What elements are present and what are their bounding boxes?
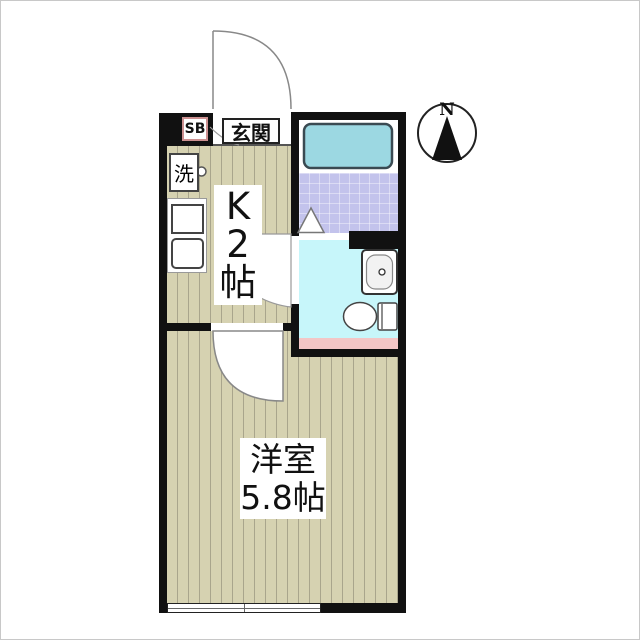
stove-box xyxy=(171,204,204,234)
room-door-swing xyxy=(213,331,283,401)
compass-north-label: N xyxy=(437,100,457,120)
western-room-label: 洋室 5.8帖 xyxy=(240,438,326,519)
toilet-icon xyxy=(344,303,398,331)
kitchen-label-line1: K xyxy=(226,188,250,226)
compass-north-text: N xyxy=(439,100,455,120)
floor-plan: 洗 SB 玄関 K 2 帖 洋室 5.8帖 N xyxy=(0,0,640,640)
shower-door-triangle-icon xyxy=(298,208,324,233)
room-name-text: 洋室 xyxy=(250,441,316,479)
washer-label: 洗 xyxy=(174,158,194,187)
washing-machine-space: 洗 xyxy=(169,153,199,192)
shoe-box-text: SB xyxy=(185,121,206,137)
kitchen-label-line3: 帖 xyxy=(220,264,257,302)
sink-box xyxy=(171,238,204,269)
entrance-door-swing xyxy=(213,31,291,109)
room-size-text: 5.8帖 xyxy=(240,479,325,517)
kitchen-label: K 2 帖 xyxy=(214,185,262,305)
entrance-text: 玄関 xyxy=(231,117,271,146)
washbasin-icon xyxy=(362,250,397,294)
shoe-box-label: SB xyxy=(182,117,208,141)
bathtub-icon xyxy=(304,124,392,168)
kitchen-label-line2: 2 xyxy=(226,226,250,264)
entrance-label: 玄関 xyxy=(222,118,280,144)
washroom-door-leaf xyxy=(257,234,291,307)
